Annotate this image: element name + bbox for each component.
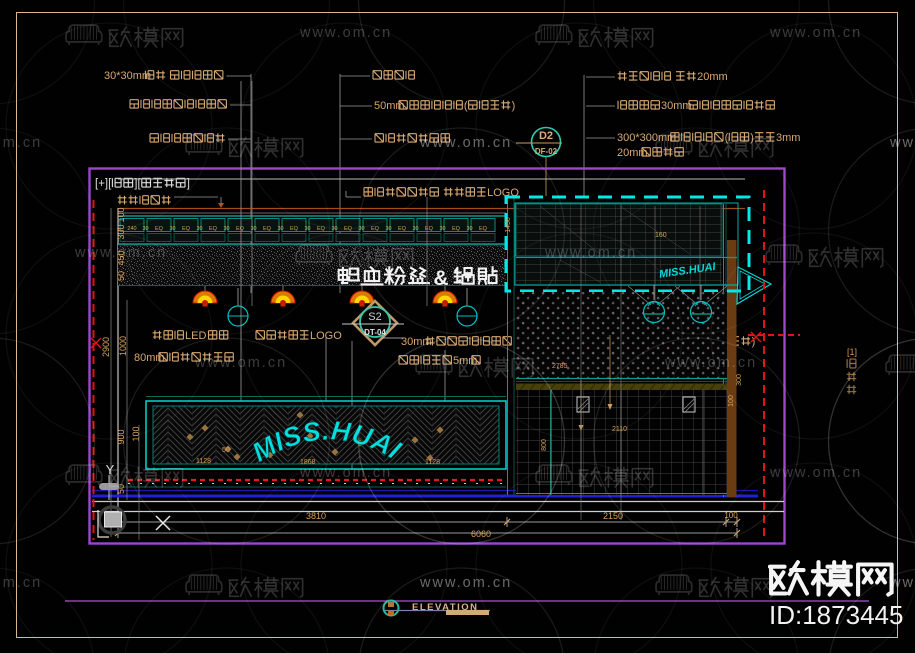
svg-text:www.om.cn: www.om.cn <box>419 135 512 151</box>
svg-text:2785: 2785 <box>552 363 568 370</box>
svg-text:ID:1873445: ID:1873445 <box>769 600 903 630</box>
svg-text:300: 300 <box>736 374 743 386</box>
svg-text:30*30mm: 30*30mm <box>104 70 151 82</box>
svg-text:50: 50 <box>116 271 126 281</box>
svg-text:EQ: EQ <box>290 226 299 232</box>
svg-text:S2: S2 <box>368 311 381 323</box>
svg-text:1450: 1450 <box>505 217 512 233</box>
svg-text:EQ: EQ <box>479 226 488 232</box>
svg-text:EQ: EQ <box>209 226 218 232</box>
svg-text:30: 30 <box>142 226 148 232</box>
svg-text:(: ( <box>464 100 468 112</box>
svg-text:3810: 3810 <box>306 511 326 521</box>
svg-text:]: ] <box>187 178 190 190</box>
svg-text:30mm: 30mm <box>401 336 432 348</box>
svg-text:30: 30 <box>466 226 472 232</box>
svg-text:EQ: EQ <box>155 226 164 232</box>
svg-text:www.om.cn: www.om.cn <box>419 575 512 591</box>
svg-text:1128: 1128 <box>196 458 211 465</box>
svg-text:2900: 2900 <box>101 337 111 357</box>
svg-text:30: 30 <box>250 226 256 232</box>
svg-text:EQ: EQ <box>236 226 245 232</box>
svg-text:EQ: EQ <box>263 226 272 232</box>
svg-text:300: 300 <box>116 224 126 239</box>
svg-text:50: 50 <box>222 447 230 454</box>
svg-text:1000: 1000 <box>118 336 128 356</box>
svg-text:[1]: [1] <box>847 347 857 357</box>
svg-text:DF-02: DF-02 <box>535 147 558 156</box>
svg-text:EQ: EQ <box>452 226 461 232</box>
svg-text:EQ: EQ <box>425 226 434 232</box>
svg-text:160: 160 <box>655 232 667 239</box>
svg-text:&: & <box>433 267 448 290</box>
svg-text:30: 30 <box>412 226 418 232</box>
svg-text:800: 800 <box>541 439 548 451</box>
svg-text:): ) <box>512 100 516 112</box>
svg-text:DT-04: DT-04 <box>364 328 386 337</box>
svg-text:EQ: EQ <box>371 226 380 232</box>
svg-text:D2: D2 <box>539 130 553 142</box>
svg-text:EQ: EQ <box>398 226 407 232</box>
svg-text:30: 30 <box>385 226 391 232</box>
svg-text:1128: 1128 <box>425 459 440 466</box>
svg-text:[+][: [+][ <box>95 178 112 190</box>
svg-text:30: 30 <box>277 226 283 232</box>
svg-text:www.om.cn: www.om.cn <box>74 245 167 261</box>
svg-text:30: 30 <box>304 226 310 232</box>
svg-text:2150: 2150 <box>603 511 623 521</box>
svg-text:www.om.cn: www.om.cn <box>544 245 637 261</box>
svg-text:3mm: 3mm <box>776 132 800 144</box>
svg-text:2110: 2110 <box>612 426 627 433</box>
svg-text:EQ: EQ <box>182 226 191 232</box>
svg-text:30: 30 <box>196 226 202 232</box>
svg-text:www.om.cn: www.om.cn <box>889 135 915 151</box>
svg-text:30: 30 <box>439 226 445 232</box>
svg-text:30: 30 <box>169 226 175 232</box>
svg-text:30: 30 <box>223 226 229 232</box>
